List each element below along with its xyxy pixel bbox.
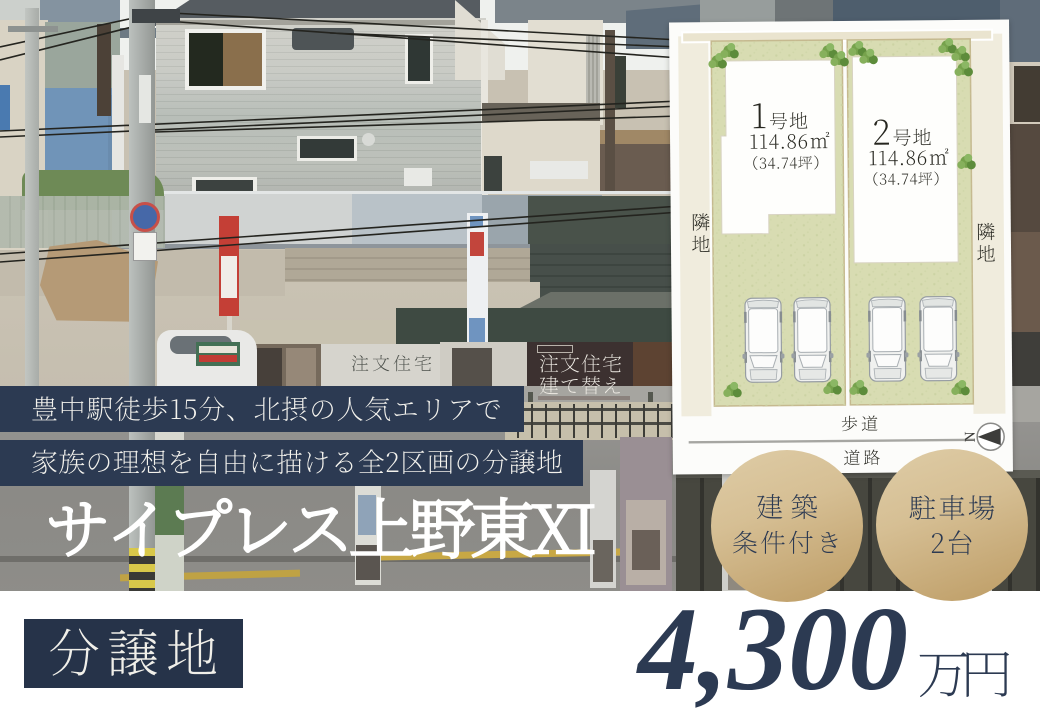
- svg-text:4,300: 4,300: [636, 582, 908, 715]
